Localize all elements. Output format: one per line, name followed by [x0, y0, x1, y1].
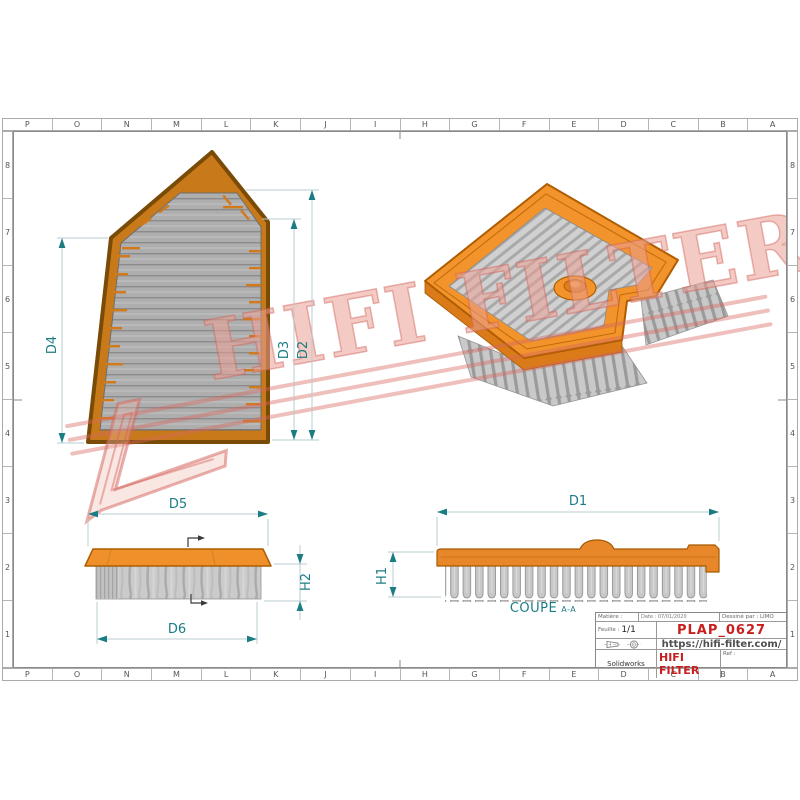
- grid-row-label: 4: [3, 399, 12, 466]
- dim-d5: D5: [88, 497, 268, 546]
- grid-col-label: N: [101, 669, 151, 680]
- grid-row-label: 6: [3, 265, 12, 332]
- grid-col-label: G: [449, 669, 499, 680]
- ref-label: Ref :: [723, 651, 736, 657]
- grid-row-label: 1: [788, 600, 797, 667]
- drawn-by-label: Dessiné par : LIMO: [722, 614, 774, 620]
- sheet-value: 1/1: [621, 625, 635, 635]
- grid-col-label: A: [747, 119, 797, 130]
- grid-row-label: 8: [3, 132, 12, 198]
- grid-row-label: 2: [3, 533, 12, 600]
- grid-col-label: H: [400, 669, 450, 680]
- drawing-sheet: HIFI FILTER® D4 D3 D2: [0, 0, 800, 800]
- dim-d3: D3: [262, 219, 319, 440]
- brand-name: HIFI FILTER: [659, 651, 718, 677]
- dim-h2: H2: [264, 545, 314, 620]
- material-label: Matière :: [598, 614, 622, 620]
- grid-col-label: K: [250, 119, 300, 130]
- date-label: Date : 07/01/2020: [641, 614, 687, 620]
- grid-col-label: J: [300, 669, 350, 680]
- grid-row-label: 5: [3, 332, 12, 399]
- sheet-label: Feuille :: [598, 627, 619, 633]
- dim-label-d3: D3: [277, 341, 292, 359]
- grid-row-label: 7: [3, 198, 12, 265]
- grid-col-label: B: [698, 119, 748, 130]
- sheet-center-ticks: [13, 131, 787, 668]
- dim-label-d6: D6: [168, 622, 186, 637]
- dim-d1: D1: [437, 494, 719, 546]
- software-label: Solidworks: [607, 660, 645, 668]
- grid-col-label: O: [52, 119, 102, 130]
- grid-col-label: D: [598, 119, 648, 130]
- dim-d4: D4: [45, 238, 108, 443]
- grid-row-label: 1: [3, 600, 12, 667]
- grid-row-label: 4: [788, 399, 797, 466]
- section-cut-marks: [188, 535, 208, 606]
- dim-label-d2: D2: [296, 341, 311, 359]
- grid-row-label: 6: [788, 265, 797, 332]
- grid-col-label: P: [3, 669, 52, 680]
- grid-right-ruler: 8 7 6 5 4 3 2 1: [787, 131, 798, 668]
- title-block: Matière : Date : 07/01/2020 Dessiné par …: [595, 612, 787, 668]
- grid-row-label: 5: [788, 332, 797, 399]
- grid-col-label: I: [350, 669, 400, 680]
- dim-d2: D2: [246, 190, 319, 440]
- grid-col-label: E: [549, 119, 599, 130]
- grid-col-label: P: [3, 119, 52, 130]
- grid-col-label: F: [499, 119, 549, 130]
- grid-col-label: E: [549, 669, 599, 680]
- grid-col-label: J: [300, 119, 350, 130]
- projection-symbol-icon: [603, 640, 649, 649]
- website-link: https://hifi-filter.com/: [662, 639, 782, 650]
- section-caption-main: COUPE: [510, 601, 557, 616]
- dim-label-d5: D5: [169, 497, 187, 512]
- grid-col-label: G: [449, 119, 499, 130]
- grid-row-label: 3: [3, 466, 12, 533]
- grid-col-label: N: [101, 119, 151, 130]
- grid-col-label: M: [151, 669, 201, 680]
- grid-col-label: L: [201, 669, 251, 680]
- dim-label-h2: H2: [299, 573, 314, 591]
- grid-row-label: 8: [788, 132, 797, 198]
- dim-d6: D6: [97, 602, 257, 644]
- grid-col-label: C: [648, 119, 698, 130]
- dim-label-h1: H1: [375, 567, 390, 585]
- part-number: PLAP_0627: [677, 623, 766, 638]
- grid-row-label: 3: [788, 466, 797, 533]
- dim-label-d1: D1: [569, 494, 587, 509]
- grid-top-ruler: P O N M L K J I H G F E D C B A: [2, 118, 798, 131]
- grid-col-label: K: [250, 669, 300, 680]
- section-caption: COUPEA-A: [510, 601, 576, 616]
- dim-h1: H1: [375, 552, 441, 597]
- grid-left-ruler: 8 7 6 5 4 3 2 1: [2, 131, 13, 668]
- grid-col-label: I: [350, 119, 400, 130]
- grid-col-label: H: [400, 119, 450, 130]
- grid-row-label: 2: [788, 533, 797, 600]
- dim-label-d4: D4: [45, 336, 60, 354]
- section-caption-ref: A-A: [561, 605, 576, 614]
- grid-row-label: 7: [788, 198, 797, 265]
- grid-col-label: M: [151, 119, 201, 130]
- grid-col-label: F: [499, 669, 549, 680]
- grid-col-label: L: [201, 119, 251, 130]
- grid-col-label: O: [52, 669, 102, 680]
